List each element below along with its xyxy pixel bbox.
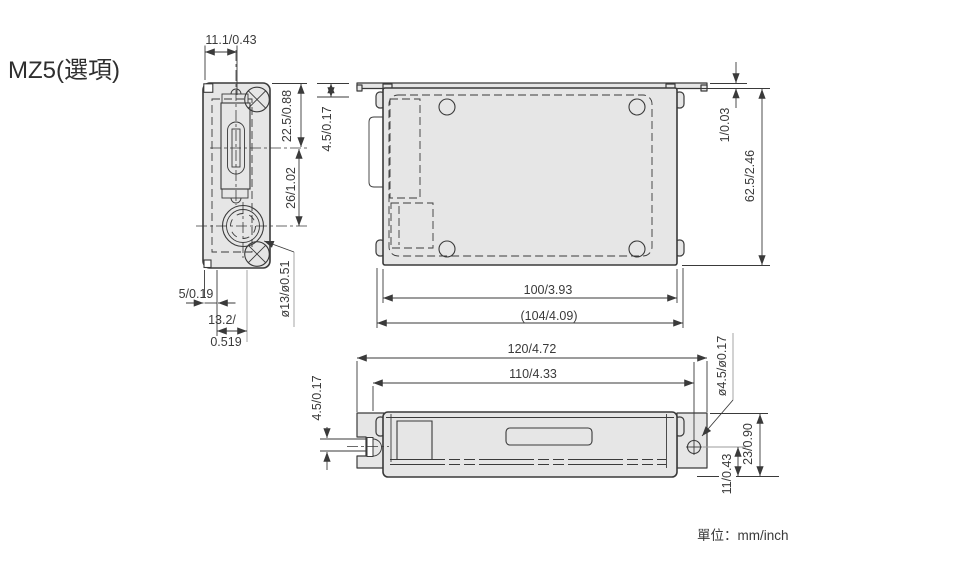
technical-drawing-page: MZ5(選項) 單位：mm/inch <box>0 0 973 565</box>
dim-top-to-connector: 22.5/0.88 <box>280 90 294 142</box>
corner-notch-top <box>204 84 213 93</box>
flange-hook <box>357 85 362 91</box>
dim-flange-thickness: 1/0.03 <box>718 108 732 143</box>
page-title: MZ5(選項) <box>8 57 120 84</box>
top-view: 1/0.03 62.5/2.46 100/3.93 (104/4.09) <box>357 62 770 328</box>
units-note: 單位：mm/inch <box>697 528 789 543</box>
flange-hook <box>701 85 707 91</box>
top-body <box>383 88 677 265</box>
front-view: 120/4.72 110/4.33 4.5/0.17 ø4.5/ø0.17 23… <box>310 333 779 494</box>
side-view: 11.1/0.43 22.5/0.88 4.5/0.17 26/1.02 5/0… <box>179 33 349 349</box>
dim-hole-diameter: ø4.5/ø0.17 <box>715 336 729 396</box>
dim-height: 23/0.90 <box>741 423 755 465</box>
dimension-drawing: MZ5(選項) 單位：mm/inch <box>0 0 973 565</box>
connector-side-outline <box>369 117 383 187</box>
dim-overall-width: (104/4.09) <box>521 309 578 323</box>
dim-hole-span: 110/4.33 <box>509 367 557 381</box>
dim-knob-diameter: ø13/ø0.51 <box>278 260 292 317</box>
dim-edge-to-center: 5/0.19 <box>179 287 214 301</box>
dim-center-spacing-mm: 13.2/ <box>208 313 236 327</box>
dim-depth: 62.5/2.46 <box>743 150 757 202</box>
dim-screw-offset: 4.5/0.17 <box>320 106 334 151</box>
dim-width-top: 11.1/0.43 <box>205 33 256 47</box>
side-body <box>203 83 270 268</box>
dim-body-width: 100/3.93 <box>524 283 573 297</box>
corner-notch-bottom <box>204 260 211 268</box>
dim-center-spacing-inch: 0.519 <box>210 335 241 349</box>
dim-hole-to-bottom: 11/0.43 <box>720 454 734 495</box>
dim-bracket-span: 120/4.72 <box>508 342 557 356</box>
dim-screw-diameter: 4.5/0.17 <box>310 375 324 420</box>
dim-connector-to-knob: 26/1.02 <box>284 167 298 209</box>
